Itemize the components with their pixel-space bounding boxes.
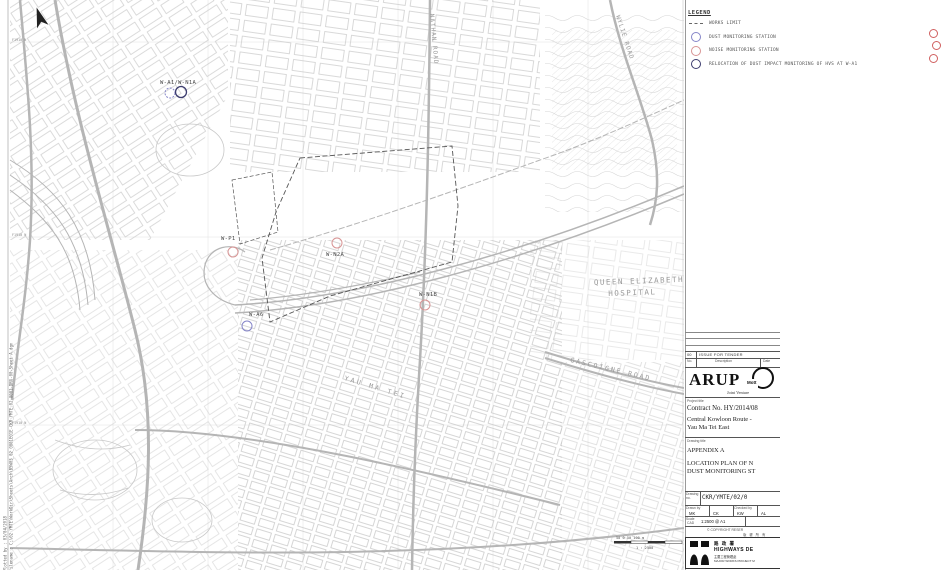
drawn-by-value2: CK — [713, 511, 719, 516]
drawn-by-label: Drawn by — [686, 506, 700, 510]
legend-item-relocation: RELOCATION OF DUST IMPACT MONITORING OF … — [688, 60, 898, 69]
date-col-header: Date — [763, 359, 770, 363]
legend-item-works-limit: WORKS LIMIT — [688, 19, 898, 28]
arup-logo: ARUP — [689, 370, 740, 390]
noise-circle-icon — [688, 46, 704, 56]
copyright-text: © COPYRIGHT RESER — [707, 528, 743, 532]
legend: LEGEND WORKS LIMIT DUST MONITORING STATI… — [688, 10, 898, 73]
legend-item-noise: NOISE MONITORING STATION — [688, 46, 898, 55]
highways-department-box: 路 政 署 HIGHWAYS DE 主要工程管理處 MAJOR WORKS PR… — [685, 537, 780, 569]
scale-bar-ratio: 1 : 2500 — [636, 546, 653, 550]
review-mark — [929, 54, 938, 63]
relocation-circle-icon — [688, 59, 704, 69]
yau-ma-tei-district — [238, 240, 562, 570]
project-title-label: Project title — [687, 399, 704, 403]
cad-map: 50 0 50 100 m 1 : 2500 NATHAN ROADWYLIE … — [0, 0, 684, 570]
revision-number: 00 — [687, 352, 691, 357]
checked-by-label: Checked by — [734, 506, 752, 510]
scale-value: 1:2500 @ A1 — [701, 519, 725, 524]
dept-sub-english: MAJOR WORKS PROJECT M — [714, 559, 755, 563]
dust-circle-icon — [688, 32, 704, 42]
grid-reference-label: F1910 N — [12, 233, 26, 237]
map-area: 50 0 50 100 m 1 : 2500 NATHAN ROADWYLIE … — [0, 0, 684, 570]
west-district — [10, 250, 238, 570]
drawing-no-value: CKR/YMTE/02/0 — [702, 495, 747, 501]
legend-item-dust: DUST MONITORING STATION — [688, 33, 898, 42]
drawing-no-label: Drawing no. — [686, 493, 700, 501]
station-label: W-N2A — [326, 252, 344, 258]
filename-line: Filename : C:\02 YMTE\WorkDir\Sheets\Arc… — [8, 208, 14, 570]
grid-reference-label: F1910 N — [12, 38, 26, 42]
description-col-header: Description — [715, 359, 732, 363]
drawing-title-label: Drawing title — [687, 439, 706, 443]
drawn-by-value1: MK — [689, 511, 695, 516]
project-name-line1: Central Kowloon Route - — [687, 416, 752, 423]
checked-by-value2: AL — [761, 511, 766, 516]
highways-department-logo-icon — [689, 540, 711, 566]
title-block: 00 ISSUE FOR TENDER No. Description Date… — [685, 320, 780, 570]
dashed-line-icon — [688, 23, 704, 24]
scale-sub: CAD — [687, 521, 694, 525]
review-mark — [929, 29, 938, 38]
station-label: W-P1 — [221, 236, 235, 242]
review-mark — [932, 41, 941, 50]
legend-title: LEGEND — [688, 10, 898, 16]
grid-reference-label: F1910 N — [12, 421, 26, 425]
station-label: W-N1B — [419, 292, 437, 298]
northwest-district — [10, 0, 228, 240]
scale-bar-ticks: 50 0 50 100 m — [616, 536, 644, 540]
checked-by-value1: KW — [737, 511, 744, 516]
joint-venture-label: Joint Venture — [727, 390, 749, 395]
project-name-line2: Yau Ma Tei East — [687, 424, 729, 431]
drawing-title-line2: DUST MONITORING ST — [687, 468, 755, 475]
dept-name-english: HIGHWAYS DE — [714, 547, 754, 553]
plot-info: Plotted by : 03/04/2018 Filename : C:\02… — [3, 208, 14, 570]
revision-description: ISSUE FOR TENDER — [699, 352, 743, 357]
rev-col-header: No. — [687, 359, 692, 363]
drawing-title-line1: LOCATION PLAN OF N — [687, 460, 753, 467]
appendix-label: APPENDIX A — [687, 447, 724, 454]
contract-number: Contract No. HY/2014/08 — [687, 405, 758, 412]
station-label: W-A1/W-N1A — [160, 80, 197, 86]
station-label: W-A6 — [249, 312, 263, 318]
mott-logo-text: Mott — [747, 380, 757, 385]
nathan-road-district — [230, 0, 540, 172]
